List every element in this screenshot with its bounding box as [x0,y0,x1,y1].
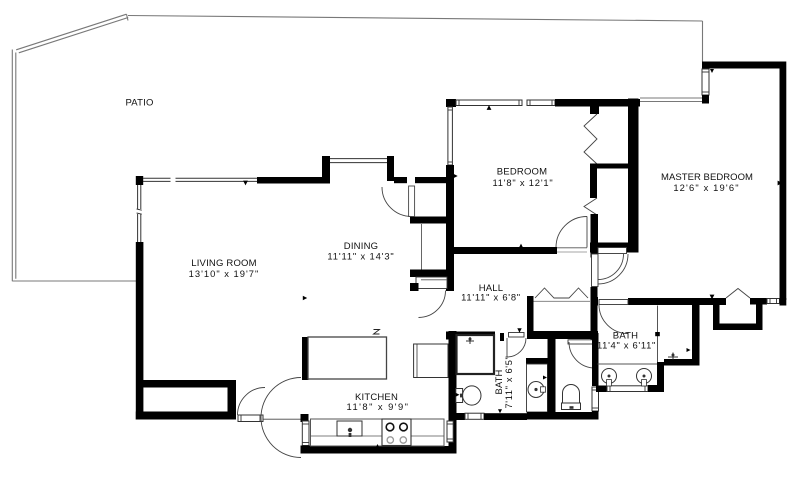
svg-text:7'11" x 6'5": 7'11" x 6'5" [504,356,514,409]
svg-text:11'8" x 9'9": 11'8" x 9'9" [347,401,410,412]
svg-text:13'10" x 19'7": 13'10" x 19'7" [189,268,260,279]
svg-text:BEDROOM: BEDROOM [497,167,548,178]
svg-text:11'11" x 6'8": 11'11" x 6'8" [461,292,521,303]
svg-text:BATH: BATH [494,370,504,395]
svg-text:12'6" x 19'6": 12'6" x 19'6" [673,182,739,193]
svg-text:11'11" x 14'3": 11'11" x 14'3" [327,251,394,262]
svg-text:11'4" x 6'11": 11'4" x 6'11" [597,340,656,351]
svg-text:11'8" x 12'1": 11'8" x 12'1" [492,177,553,188]
svg-text:PATIO: PATIO [125,98,153,109]
